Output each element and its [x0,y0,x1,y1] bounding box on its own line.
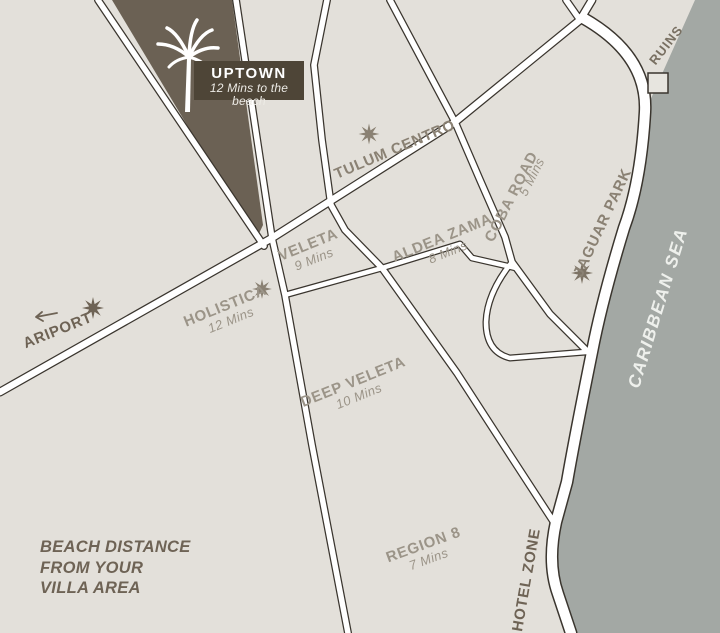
tulum-centro-star-icon [359,124,380,145]
legend-line-2: FROM YOUR [40,558,191,579]
uptown-subtitle: 12 Mins to the beach [194,82,304,108]
legend-line-3: VILLA AREA [40,578,191,599]
legend-line-1: BEACH DISTANCE [40,537,191,558]
tulum-beach-distance-map: TULUM CENTRO VELETA 9 Mins ALDEA ZAMA 8 … [0,0,720,633]
uptown-name: UPTOWN [194,65,304,82]
ruins-marker [648,73,668,93]
map-legend: BEACH DISTANCE FROM YOUR VILLA AREA [40,537,191,599]
uptown-callout: UPTOWN 12 Mins to the beach [194,61,304,100]
